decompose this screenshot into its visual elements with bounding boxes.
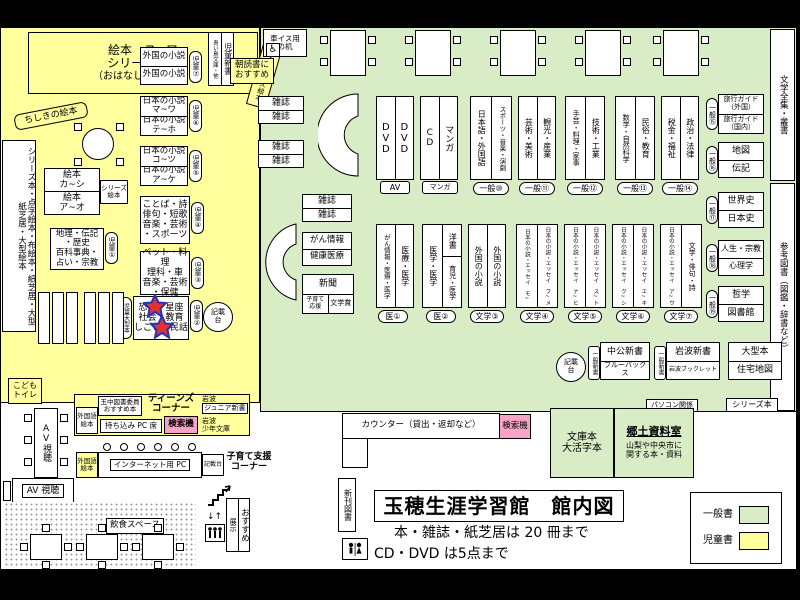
wheelchair-icon: ♿ <box>266 43 280 57</box>
frame-top <box>0 0 800 27</box>
chair <box>132 543 140 551</box>
chair <box>24 458 32 466</box>
tag-bungaku-4: 文学④ <box>520 310 554 323</box>
jp1-l2: マ~ワ <box>152 106 176 115</box>
r15-1: 旅行ガイド（外国） <box>719 95 763 114</box>
chair <box>60 436 68 444</box>
chair <box>653 36 661 44</box>
chair <box>60 458 68 466</box>
kisaidai-2: 台 <box>215 317 222 325</box>
tag-ippan-10: 一般⑩ <box>473 182 509 195</box>
b7-col2: 文学・俳句・詩 <box>687 242 695 291</box>
chair <box>368 58 376 66</box>
tag-ippan-shinsho-1: 一般新書 <box>588 346 600 380</box>
writing-desk-general: 記載 台 <box>556 352 586 382</box>
series-books-text: シリーズ本 <box>732 401 772 410</box>
health-medical-label: 健康医療 <box>303 249 351 266</box>
chair <box>538 58 546 66</box>
bluebacks-label: ブルーバックス <box>601 361 649 380</box>
reading-table <box>500 30 536 76</box>
av-booth-label: AV 視聴 <box>22 484 65 498</box>
bungaku-sho-cell: 文学賞 <box>329 295 354 314</box>
elevator-arrows-icon: ↓↑ <box>207 512 222 522</box>
byod-label: 持ち込み PC 席 <box>105 422 157 430</box>
map-title: 玉穂生涯学習館 館内図 <box>374 490 624 522</box>
internet-pc-counter: インターネット用 PC <box>98 452 202 478</box>
chair <box>701 58 709 66</box>
chair <box>120 543 128 551</box>
shelf-general-14: 税金・福祉 政治・法律 <box>661 96 699 180</box>
chair <box>74 123 82 131</box>
jp1-l4: テ~ホ <box>152 126 176 135</box>
shelf-cancer-health: がん情報 健康医療 <box>302 232 352 266</box>
s12-col2: 技術・工業 <box>590 118 599 158</box>
dvd-col-2: DVD <box>399 122 410 155</box>
legend-general-swatch <box>739 506 769 524</box>
kids-toilet-2: トイレ <box>13 391 37 400</box>
av-viewing-booth: AV 視聴 <box>12 478 74 504</box>
r15-2: 旅行ガイド（国内） <box>719 114 763 134</box>
zenshu-label: 文学全集・叢書 <box>778 75 788 135</box>
tag-av: AV <box>380 181 410 194</box>
stool <box>103 443 111 451</box>
chair <box>653 58 661 66</box>
jp2-l4: ア~ケ <box>152 176 176 185</box>
tag-bungaku-3: 文学③ <box>470 310 504 323</box>
tag-ippan-17: 一般⑰ <box>706 196 718 224</box>
jutaku-chizu-label: 住宅地図 <box>729 361 781 380</box>
shelf-magazines-3: 雑誌 雑誌 <box>302 194 352 222</box>
dvd-col-1: DVD <box>380 122 391 155</box>
search-terminal-teens-label: 検索機 <box>168 420 194 430</box>
junior-1: 岩波 <box>202 395 250 403</box>
shelf-kids-jp-novels-ma-wa: 日本の小説マ~ワ 日本の小説テ~ホ <box>140 96 188 136</box>
chair <box>623 36 631 44</box>
r17-2: 日本史 <box>719 210 763 228</box>
b7-col1: 日本の小説・エッセイ ア~ウ <box>668 227 674 306</box>
foreign-language-ehon-1: 外国語 絵本 <box>76 407 98 434</box>
dining-table <box>30 534 62 560</box>
chair <box>575 36 583 44</box>
shelf-literature-4: 日本の小説・エッセイ モ~ 日本の小説・エッセイ フ~メ <box>516 224 558 308</box>
counter: カウンター（貸出・返却など） <box>342 413 500 439</box>
tag-ippan-shinsho-2: 一般新書 <box>654 346 666 380</box>
chair <box>701 36 709 44</box>
tag-ippan-13: 一般⑬ <box>617 182 653 195</box>
kotoba-3: 音楽・芸術 <box>142 220 187 230</box>
tenji-label: 展示 <box>228 518 236 532</box>
s10-col2: スポーツ・音楽・演劇 <box>498 106 505 171</box>
local-history-room: 郷土資料室 山梨や中央市に 関する本・資料 <box>614 408 694 478</box>
reading-table <box>663 30 699 76</box>
shelf-kotoba-sports: ことば・詩 俳句・短歌 音楽・芸術 ・スポーツ <box>140 196 190 244</box>
committee-2: おすすめ本 <box>104 406 137 413</box>
chair <box>538 36 546 44</box>
tag-bungaku-7: 文学⑦ <box>664 310 698 323</box>
av-viewing-table: AV視聴 <box>34 408 58 478</box>
m1-col2: 医療・医学 <box>400 246 409 286</box>
av-bench <box>3 481 11 501</box>
recommend-display-shelf: 展示 おすすめ <box>226 498 250 552</box>
tag-jido-6: 児童⑥ <box>189 100 202 132</box>
stool <box>188 443 196 451</box>
s11-col1: 芸術・美術 <box>523 118 532 158</box>
b5-col2: 日本の小説・エッセイ ス~ト <box>592 227 598 306</box>
kotoba-2: 俳句・短歌 <box>142 210 187 220</box>
kids-toilet: こども トイレ <box>8 378 42 404</box>
chair <box>64 543 72 551</box>
counter-return <box>342 438 368 468</box>
b4-col1: 日本の小説・エッセイ モ~ <box>524 229 530 302</box>
b4-col2: 日本の小説・エッセイ フ~メ <box>544 227 550 306</box>
tag-jido-5: 児童⑤ <box>189 150 202 182</box>
pet-1: ペット・料理 <box>141 248 189 268</box>
chiri-4: 占い・宗教 <box>56 259 99 269</box>
reading-table <box>585 30 621 76</box>
r19-2: 図書館 <box>719 304 763 322</box>
m2-col1: 医学・医学 <box>428 246 437 286</box>
chair <box>42 561 50 569</box>
shelf-new-books: 新刊図書 <box>338 478 356 532</box>
chair <box>154 561 162 569</box>
ogata-label: 大型本 <box>729 343 781 361</box>
s10-col1: 日本語・外国語 <box>476 110 485 166</box>
shelf-kids-jp-novels-a-ke: 日本の小説コ~ツ 日本の小説ア~ケ <box>140 146 188 186</box>
tag-ippan-14: 一般⑭ <box>662 182 698 195</box>
shelf-series-ehon-small: シリーズ 絵本 <box>100 180 128 204</box>
series-ehon-2: 絵本 <box>108 192 121 199</box>
magazine-label: 雑誌 <box>303 195 351 208</box>
s13-col2: 民俗・教育 <box>640 118 649 158</box>
kosodate-2: コーナー <box>224 462 274 472</box>
yosho-label: 洋書 <box>447 233 456 249</box>
kids-foreign-novels-2: 外国の小説 <box>141 66 187 85</box>
yosho-cell: 洋書 <box>443 225 462 257</box>
kyodo-desc-2: 関する本・資料 <box>626 451 682 460</box>
chair <box>60 414 68 422</box>
cd-col: CD <box>425 128 435 148</box>
tag-bungaku-5: 文学⑤ <box>568 310 602 323</box>
legend-row-children: 児童書 <box>703 532 769 550</box>
writing-desk-south: 記載台 <box>202 454 224 476</box>
new-books-label: 新刊図書 <box>343 489 352 521</box>
curved-shelf <box>318 92 360 178</box>
aoitori-bunko-label: 青い鳥文庫・他 <box>212 40 218 79</box>
s11-col2: 観光・産業 <box>542 118 551 158</box>
gaikokugo-1b: 絵本 <box>81 421 94 428</box>
r17-1: 世界史 <box>719 193 763 210</box>
teens-2: コーナー <box>142 404 200 414</box>
r19-1: 哲学 <box>719 287 763 304</box>
chair <box>24 436 32 444</box>
tag-ippan-16: 一般⑯ <box>706 146 718 174</box>
restroom-figures-icon <box>346 542 364 557</box>
chair <box>490 36 498 44</box>
series-books-label: シリーズ本 <box>726 398 778 412</box>
chair <box>98 524 106 532</box>
ehon2-1: 絵本 <box>63 193 81 203</box>
foreign-language-ehon-2: 外国語 絵本 <box>76 452 98 478</box>
shelf-literature-7: 日本の小説・エッセイ ア~ウ 文学・俳句・詩 <box>660 224 702 308</box>
shelf-medical-2: 医学・医学 洋書 育児・医学 <box>422 224 462 308</box>
kids-shelf-unit <box>38 292 50 344</box>
kamishibai-label: シリーズ本・点字絵本・布絵本・紙芝居・大型紙芝居・大型絵本 <box>3 143 35 329</box>
stool <box>120 443 128 451</box>
shelf-general-12: 手芸・料理・家事 技術・工業 <box>565 96 605 180</box>
shelf-travel-guides: 旅行ガイド（外国） 旅行ガイド（国内） <box>718 94 764 134</box>
shonen-2: 少年文庫 <box>202 425 250 433</box>
chair <box>116 123 124 131</box>
legend: 一般書 児童書 <box>690 492 782 564</box>
m1-col1: がん情報・医療・医学 <box>382 234 389 299</box>
dining-table <box>86 534 118 560</box>
restroom-icon <box>342 538 368 560</box>
b6-col1: 日本の小説・エッセイ ク~シ <box>620 227 626 306</box>
chair <box>575 58 583 66</box>
shelf-maps-biography: 地図 伝記 <box>718 142 764 178</box>
iwanami-shonen: 岩波 少年文庫 <box>202 417 250 434</box>
round-table <box>82 128 114 160</box>
asadoku-line2: おすすめ <box>235 71 269 81</box>
iwanami-shinsho-label: 岩波新書 <box>667 343 719 361</box>
shelf-dvd: DVD DVD <box>376 96 414 180</box>
shelf-bunko: 文庫本 大活字本 <box>550 408 614 478</box>
kotoba-1: ことば・詩 <box>142 200 187 210</box>
tag-jido-1: 児童① <box>105 232 118 264</box>
tag-jido-7: 児童⑦ <box>189 51 202 83</box>
shelf-magazines-1: 雑誌 雑誌 <box>258 96 304 124</box>
ikuji-label: 育児・医学 <box>448 265 456 300</box>
kosodate-ouen-2: 応援 <box>309 304 321 311</box>
chair <box>98 561 106 569</box>
b3-col2: 外国の小説 <box>492 246 501 286</box>
shelf-kamishibai-large-books: シリーズ本・点字絵本・布絵本・紙芝居・大型紙芝居・大型絵本 <box>2 140 36 332</box>
shelf-general-13: 数学・自然科学 民俗・教育 <box>615 96 655 180</box>
kids-shelf-unit <box>84 292 96 344</box>
shelf-ehon-a-o: 絵本 ア~オ <box>44 191 100 215</box>
shelf-history: 世界史 日本史 <box>718 192 764 228</box>
iwanami-junior: 岩波 ジュニア新書 <box>202 395 250 414</box>
chair <box>623 58 631 66</box>
stool <box>137 443 145 451</box>
pet-3: 音楽・芸術 <box>142 278 187 288</box>
shelf-newspaper: 新聞 子育て 応援 文学賞 <box>302 274 354 314</box>
chair <box>320 36 328 44</box>
curved-shelf <box>256 222 300 302</box>
magazine-label: 雑誌 <box>259 110 303 124</box>
shelf-magazines-2: 雑誌 雑誌 <box>258 140 304 168</box>
shelf-general-10: 日本語・外国語 スポーツ・音楽・演劇 <box>470 96 512 180</box>
kids-shelf-unit <box>112 292 124 344</box>
chair <box>74 158 82 166</box>
dining-table <box>142 534 174 560</box>
kids-foreign-novels-1: 外国の小説 <box>141 48 187 66</box>
ehon1-2: カ~シ <box>59 180 85 190</box>
map-title-text: 玉穂生涯学習館 館内図 <box>384 495 615 517</box>
rule-av-text: CD・DVD は5点まで <box>374 547 509 562</box>
tag-ippan-11: 一般⑪ <box>519 182 555 195</box>
tag-i-1: 医① <box>378 310 408 323</box>
pet-2: 理科・車 <box>147 268 183 278</box>
stool <box>154 443 162 451</box>
kosodate-ouen-cell: 子育て 応援 <box>303 295 329 314</box>
shelf-ehon-ka-shi: 絵本 カ~シ <box>44 168 100 192</box>
search-terminal-label: 検索機 <box>502 422 528 432</box>
tag-bungaku-6: 文学⑥ <box>616 310 650 323</box>
chair <box>42 524 50 532</box>
r18-2: 心理学 <box>719 258 763 276</box>
shelf-literature-3: 外国の小説 外国の小説 <box>468 224 506 308</box>
legend-children-label: 児童書 <box>703 535 733 546</box>
tag-ippan-12: 一般⑫ <box>567 182 603 195</box>
kids-shelf-unit <box>66 292 78 344</box>
shelf-literature-5: 日本の小説・エッセイ ナ~ヒ 日本の小説・エッセイ ス~ト <box>564 224 606 308</box>
r16-2: 伝記 <box>719 160 763 178</box>
teens-corner-label: ティーンズ コーナー <box>142 394 200 416</box>
ehon1-1: 絵本 <box>63 170 81 180</box>
elevator-icon <box>205 524 225 542</box>
chair <box>453 36 461 44</box>
tag-jido-3: 児童③ <box>191 257 204 289</box>
writing-desk-children: 記載 台 <box>203 302 233 332</box>
byod-pc-seat: 持ち込み PC 席 <box>100 419 162 433</box>
kotoba-4: ・スポーツ <box>143 230 188 240</box>
chair <box>368 36 376 44</box>
shelf-religion-psychology: 人生・宗教 心理学 <box>718 240 764 276</box>
internet-pc-label: インターネット用 PC <box>110 459 190 471</box>
shelf-literature-6: 日本の小説・エッセイ ク~シ 日本の小説・エッセイ エ~キ <box>612 224 654 308</box>
gaikokugo-2b: 絵本 <box>81 465 94 472</box>
magazine-label: 雑誌 <box>259 141 303 154</box>
kids-shelf-unit <box>52 292 64 344</box>
shelf-iwanami-shinsho: 岩波新書 岩波ブックレット <box>666 342 720 380</box>
ehon2-2: ア~オ <box>59 203 85 213</box>
manga-col: マンガ <box>443 125 453 152</box>
av-table-label: AV視聴 <box>41 424 51 462</box>
chair <box>154 524 162 532</box>
chair <box>116 158 124 166</box>
frame-bottom <box>0 570 800 600</box>
magazine-label: 雑誌 <box>303 208 351 222</box>
committee-recommend: 玉中図書委員 おすすめ本 <box>98 396 142 416</box>
shelf-general-11: 芸術・美術 観光・産業 <box>518 96 556 180</box>
b5-col1: 日本の小説・エッセイ ナ~ヒ <box>572 227 578 306</box>
eating-space-label: 飲食スペース <box>110 521 160 531</box>
legend-row-general: 一般書 <box>703 506 769 524</box>
shelf-cd-manga: CD マンガ <box>420 96 458 180</box>
shelf-pet-cooking: ペット・料理 理科・車 音楽・芸術 ・保健 <box>140 251 190 295</box>
chair <box>320 58 328 66</box>
b6-col2: 日本の小説・エッセイ エ~キ <box>640 227 646 306</box>
kisaidai-g2: 台 <box>568 367 575 375</box>
chair <box>490 58 498 66</box>
kisaidai-south-label: 記載台 <box>204 462 222 469</box>
reading-table <box>330 30 366 76</box>
tag-jido-2: 児童② <box>190 300 203 332</box>
chair <box>176 543 184 551</box>
bunko-1: 文庫本 <box>567 432 597 443</box>
sanko-label: 参考図書（図鑑・辞書など） <box>778 242 788 353</box>
tag-ippan-18: 一般⑱ <box>706 244 718 272</box>
junior-2: ジュニア新書 <box>202 403 248 413</box>
newspaper-label: 新聞 <box>303 275 353 294</box>
b3-col1: 外国の小説 <box>473 246 482 286</box>
kids-shelf-unit <box>98 292 110 344</box>
gan-info-label: がん情報 <box>303 233 351 249</box>
r16-1: 地図 <box>719 143 763 160</box>
reading-table <box>415 30 451 76</box>
shelf-asadoku-recommend: 朝読書に おすすめ <box>230 58 274 84</box>
counter-label: カウンター（貸出・返却など） <box>361 421 480 431</box>
tag-ippan-19: 一般⑲ <box>706 290 718 318</box>
search-terminal-main: 検索機 <box>499 414 531 439</box>
chair <box>20 543 28 551</box>
chair <box>405 36 413 44</box>
star-marker-icon <box>150 315 174 339</box>
jp2-l2: コ~ツ <box>152 156 176 165</box>
shelf-literature-complete-works: 文学全集・叢書 <box>770 29 795 181</box>
search-terminal-teens: 検索機 <box>164 416 198 434</box>
iwanami-booklet-label: 岩波ブックレット <box>667 361 719 380</box>
kyodo-title: 郷土資料室 <box>627 426 682 438</box>
legend-general-label: 一般書 <box>703 509 733 520</box>
chair <box>24 414 32 422</box>
childcare-corner: 子育て支援 コーナー <box>224 452 274 473</box>
shelf-philosophy-library: 哲学 図書館 <box>718 286 764 322</box>
osusume-label: おすすめ <box>239 508 249 542</box>
library-floor-map: 絵本 ス~ワ シリーズ絵本 （おはなしコーナー） 昔話・シリーズ絵本 ちしきの絵… <box>0 0 800 600</box>
s14-col1: 税金・福祉 <box>666 118 675 158</box>
stool <box>171 443 179 451</box>
s12-col1: 手芸・料理・家事 <box>571 110 579 166</box>
tag-i-2: 医② <box>426 310 456 323</box>
tag-jido-4: 児童④ <box>191 202 204 234</box>
rule-books-text: 本・雑誌・紙芝居は 20 冊まで <box>394 526 589 541</box>
legend-children-swatch <box>739 532 769 550</box>
magazine-label: 雑誌 <box>259 154 303 168</box>
magazine-label: 雑誌 <box>259 97 303 110</box>
chair <box>76 543 84 551</box>
shelf-kids-foreign-novels: 外国の小説 外国の小説 <box>140 47 188 85</box>
s14-col2: 政治・法律 <box>685 118 694 158</box>
shelf-chuko-shinsho: 中公新書 ブルーバックス <box>600 342 650 380</box>
shelf-large-books: 大型本 住宅地図 <box>728 342 782 380</box>
chair <box>405 58 413 66</box>
ikuji-cell: 育児・医学 <box>443 257 462 307</box>
kosodate-1: 子育て支援 <box>224 452 274 462</box>
chair <box>453 58 461 66</box>
shelf-medical-1: がん情報・医療・医学 医療・医学 <box>376 224 414 308</box>
r18-1: 人生・宗教 <box>719 241 763 258</box>
s13-col1: 数学・自然科学 <box>621 114 629 163</box>
tag-ippan-15: 一般⑮ <box>706 98 718 130</box>
bunko-2: 大活字本 <box>562 443 602 454</box>
shelf-geography-encyclopedia: 地理・伝記 ・歴史 百科事典・ 占い・宗教 <box>50 228 104 270</box>
tag-manga: マンガ <box>422 181 458 194</box>
chuko-label: 中公新書 <box>601 343 649 361</box>
